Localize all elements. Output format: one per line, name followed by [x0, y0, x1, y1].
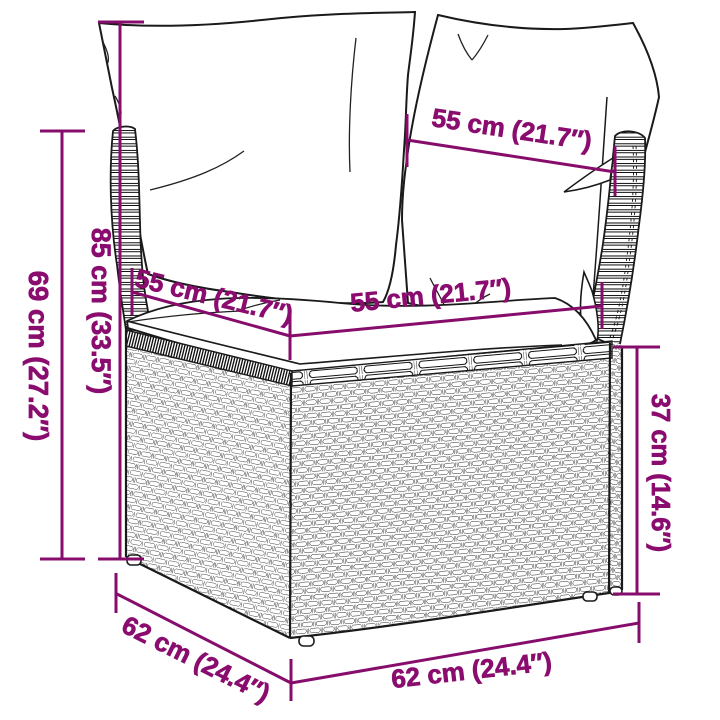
svg-text:37 cm (14.6″): 37 cm (14.6″): [646, 394, 674, 552]
svg-text:85 cm (33.5″): 85 cm (33.5″): [86, 228, 116, 394]
svg-text:69 cm (27.2″): 69 cm (27.2″): [23, 271, 54, 442]
